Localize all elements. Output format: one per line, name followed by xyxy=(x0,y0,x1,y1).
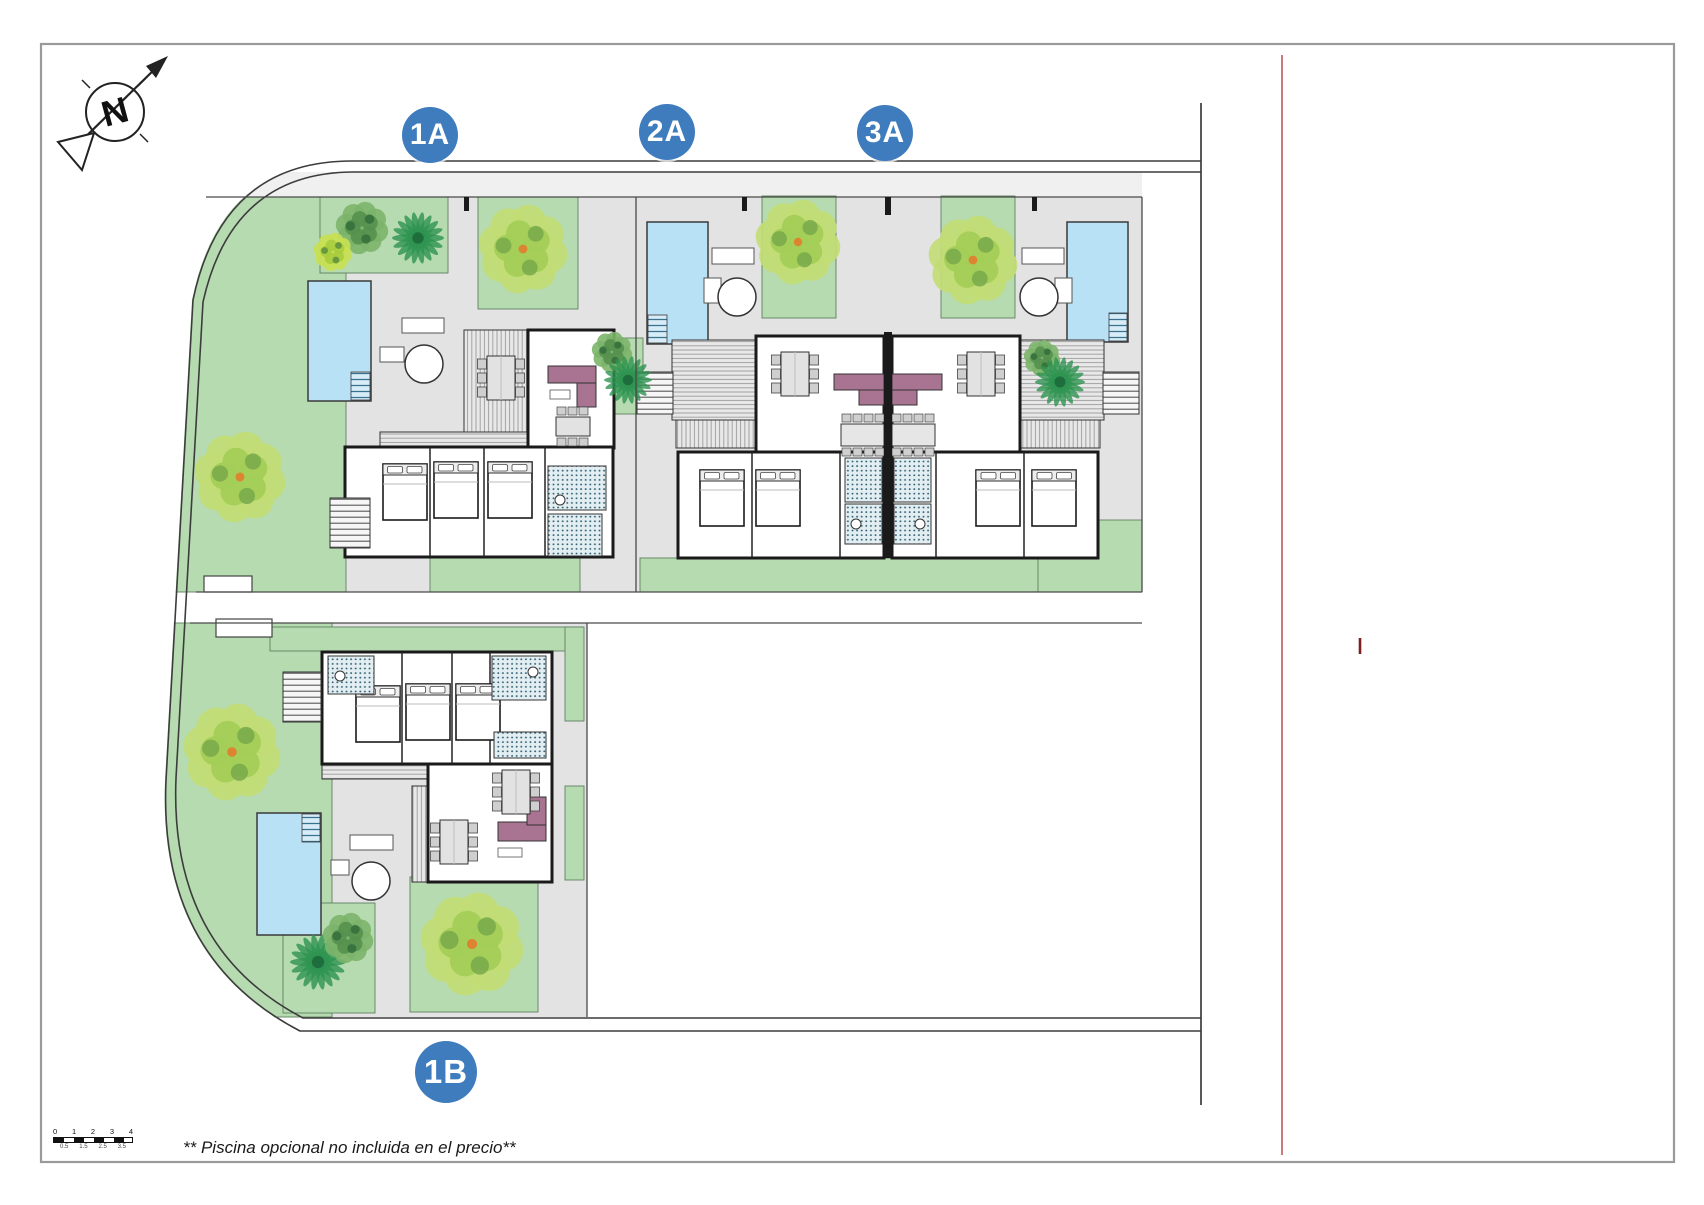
scale-tick: 3.5 xyxy=(118,1144,126,1150)
villa-label-3a: 3A xyxy=(857,105,913,161)
scale-tick: 2 xyxy=(91,1128,95,1136)
kitchen xyxy=(494,732,546,758)
villa-label-3a-text: 3A xyxy=(865,116,905,150)
bed xyxy=(756,470,800,526)
scale-tick: 0 xyxy=(53,1128,57,1136)
bathroom xyxy=(548,514,602,556)
breakfast-table xyxy=(556,417,590,436)
lounger xyxy=(380,347,404,362)
scale-tick: 2.5 xyxy=(98,1144,106,1150)
gate-1b xyxy=(216,619,272,637)
lounger xyxy=(402,318,444,333)
garden-table xyxy=(1020,278,1058,316)
scale-bar: 0 1 2 3 4 0.5 1.5 2.5 3.5 xyxy=(53,1128,133,1150)
stairs xyxy=(283,672,321,722)
lounger xyxy=(331,860,349,875)
site-plan-drawing: N xyxy=(0,0,1704,1205)
sofa xyxy=(859,390,884,405)
long-table xyxy=(841,424,884,446)
scale-bar-stripes xyxy=(53,1137,133,1143)
dining-table xyxy=(478,356,525,400)
garden-strip-1b-top xyxy=(270,627,583,651)
sofa xyxy=(577,383,596,407)
garden-strip-1b-right1 xyxy=(565,627,584,721)
dining-table xyxy=(772,352,819,396)
toilet xyxy=(555,495,565,505)
scale-tick: 4 xyxy=(129,1128,133,1136)
villa-label-1b: 1B xyxy=(415,1041,477,1103)
scale-bar-major-ticks: 0 1 2 3 4 xyxy=(53,1128,133,1136)
villa-label-1b-text: 1B xyxy=(424,1053,468,1091)
site-plan-page: N 1A 2A 3A 1B 0 1 2 3 4 0.5 1.5 2.5 3.5 … xyxy=(0,0,1704,1205)
garden-strip-1a xyxy=(430,558,580,592)
pool-disclaimer-note: ** Piscina opcional no incluida en el pr… xyxy=(183,1138,516,1158)
deck-walkway xyxy=(322,764,430,779)
sofa xyxy=(548,366,596,383)
pool-1b-steps xyxy=(302,814,320,842)
lounger xyxy=(712,248,754,264)
garden-strip-1b-right2 xyxy=(565,786,584,880)
dining-table xyxy=(493,770,540,814)
toilet xyxy=(528,667,538,677)
scale-tick: 1.5 xyxy=(79,1144,87,1150)
deck xyxy=(672,340,758,420)
stairs xyxy=(330,498,370,548)
outside-mask-bottom xyxy=(0,1032,1704,1205)
pool-3a-steps xyxy=(1109,313,1127,341)
pool-1a-steps xyxy=(351,372,370,400)
coffee-table xyxy=(498,848,522,857)
lounger xyxy=(350,835,393,850)
villa-label-2a: 2A xyxy=(639,104,695,160)
deck-table xyxy=(431,820,478,864)
bed xyxy=(488,462,532,518)
garden-table xyxy=(352,862,390,900)
deck-walkway xyxy=(380,432,530,447)
access-road xyxy=(168,593,1142,623)
scale-tick: 1 xyxy=(72,1128,76,1136)
scale-bar-minor-ticks: 0.5 1.5 2.5 3.5 xyxy=(53,1144,133,1150)
bed xyxy=(434,462,478,518)
bed xyxy=(700,470,744,526)
toilet xyxy=(335,671,345,681)
lounger xyxy=(1022,248,1064,264)
sofa xyxy=(834,374,884,390)
bed xyxy=(406,684,450,740)
scale-tick: 3 xyxy=(110,1128,114,1136)
bed xyxy=(383,464,427,520)
garden-table xyxy=(718,278,756,316)
garden-table xyxy=(405,345,443,383)
pool-2a-steps xyxy=(648,315,667,343)
bathroom xyxy=(492,656,546,700)
bathroom xyxy=(845,458,882,502)
villa-label-2a-text: 2A xyxy=(647,115,687,149)
villa-label-1a: 1A xyxy=(402,107,458,163)
coffee-table xyxy=(550,390,570,399)
villa-label-1a-text: 1A xyxy=(410,118,450,152)
scale-tick: 0.5 xyxy=(60,1144,68,1150)
gate-1a xyxy=(204,576,252,592)
party-wall xyxy=(884,332,892,558)
toilet xyxy=(851,519,861,529)
